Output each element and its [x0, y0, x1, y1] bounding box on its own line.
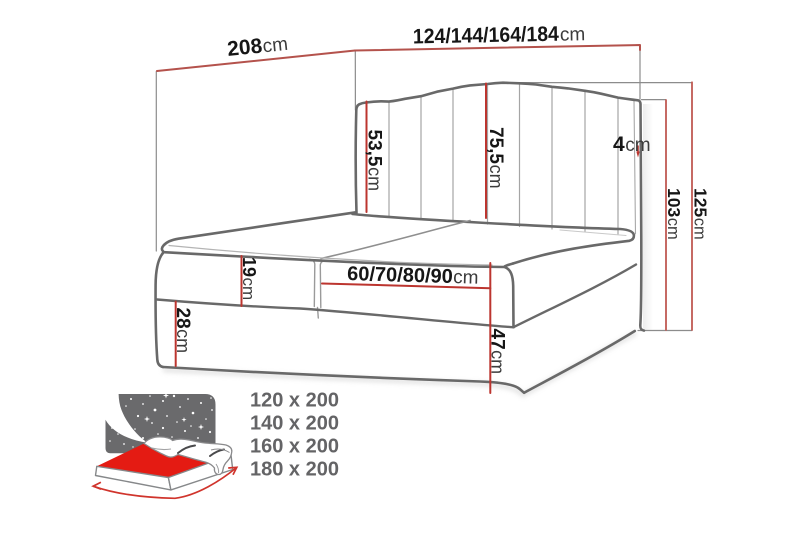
svg-text:53,5: 53,5 [364, 130, 385, 167]
svg-text:180 x 200: 180 x 200 [250, 458, 339, 480]
svg-text:cm: cm [691, 218, 709, 240]
svg-text:4: 4 [613, 133, 625, 156]
svg-text:103: 103 [664, 188, 684, 217]
svg-text:28: 28 [172, 308, 193, 329]
svg-text:cm: cm [625, 135, 650, 156]
svg-text:cm: cm [173, 329, 193, 353]
svg-text:124/144/164/184: 124/144/164/184 [413, 23, 560, 49]
svg-text:120 x 200: 120 x 200 [250, 390, 339, 412]
svg-text:cm: cm [664, 218, 682, 240]
svg-text:cm: cm [560, 24, 586, 45]
svg-text:160 x 200: 160 x 200 [250, 436, 339, 458]
svg-text:47: 47 [487, 329, 508, 350]
svg-text:140 x 200: 140 x 200 [250, 413, 339, 435]
svg-text:cm: cm [365, 167, 385, 191]
svg-text:60/70/80/90: 60/70/80/90 [347, 263, 453, 288]
svg-text:19: 19 [239, 257, 259, 277]
svg-text:208: 208 [226, 34, 264, 61]
svg-text:cm: cm [488, 350, 508, 374]
svg-text:125: 125 [691, 188, 711, 217]
svg-text:75,5: 75,5 [485, 127, 506, 164]
svg-text:cm: cm [486, 165, 506, 189]
svg-text:cm: cm [453, 267, 479, 289]
svg-text:cm: cm [262, 34, 289, 57]
svg-text:cm: cm [239, 278, 258, 301]
